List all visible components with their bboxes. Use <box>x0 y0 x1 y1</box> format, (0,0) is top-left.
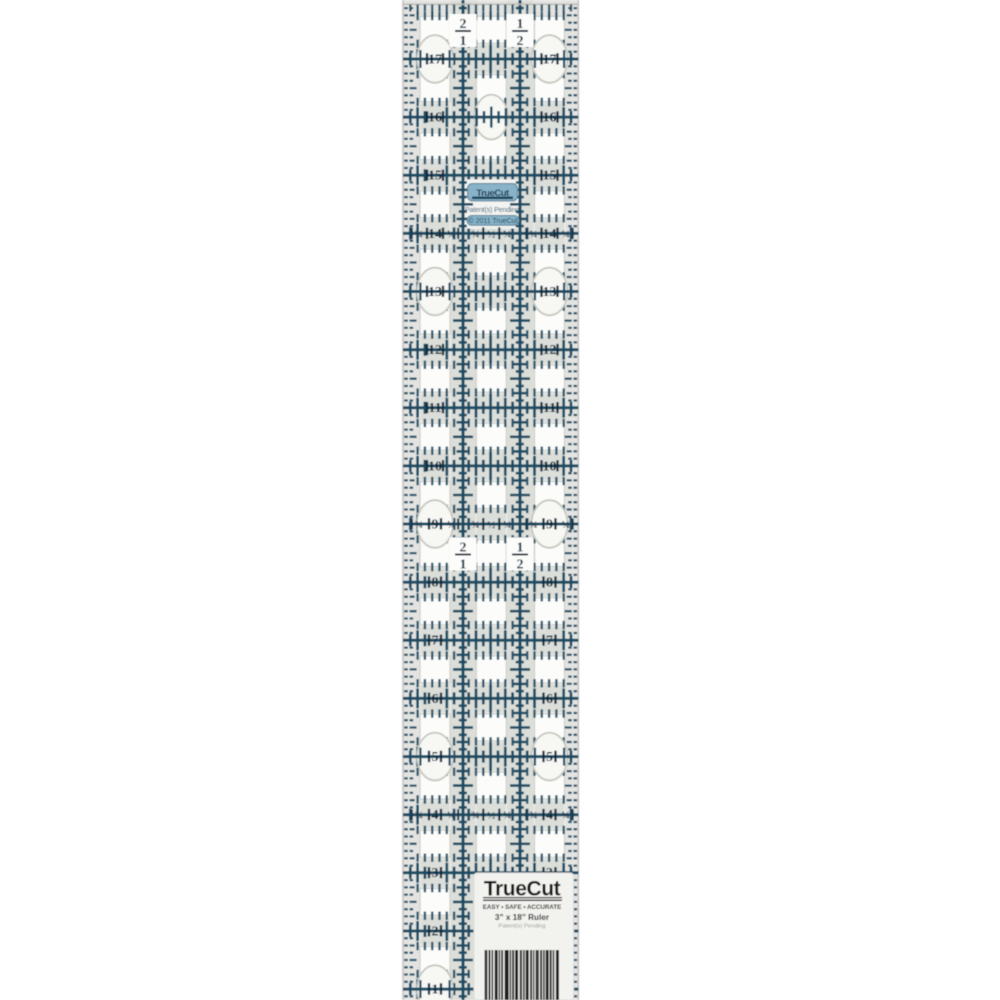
svg-text:12: 12 <box>543 343 557 358</box>
svg-text:7: 7 <box>546 634 553 649</box>
svg-text:2: 2 <box>517 558 524 573</box>
svg-text:14: 14 <box>428 227 442 242</box>
svg-text:½: ½ <box>487 810 495 822</box>
svg-text:5: 5 <box>432 750 439 765</box>
svg-text:9: 9 <box>546 517 553 532</box>
svg-text:Patent(s) Pending: Patent(s) Pending <box>465 207 520 214</box>
svg-text:6: 6 <box>546 692 553 707</box>
svg-text:5: 5 <box>546 750 553 765</box>
svg-text:14: 14 <box>543 227 557 242</box>
svg-text:12: 12 <box>428 343 442 358</box>
svg-text:8: 8 <box>432 576 439 591</box>
svg-text:4: 4 <box>546 808 553 823</box>
svg-text:½: ½ <box>487 228 495 240</box>
svg-text:8: 8 <box>546 576 553 591</box>
svg-text:4: 4 <box>432 808 439 823</box>
svg-text:2: 2 <box>460 541 467 556</box>
svg-text:½: ½ <box>487 519 495 531</box>
svg-text:1: 1 <box>517 541 524 556</box>
svg-text:¾: ¾ <box>529 228 537 240</box>
svg-text:3” x 18” Ruler: 3” x 18” Ruler <box>495 913 550 922</box>
svg-text:2: 2 <box>460 17 467 32</box>
svg-text:1: 1 <box>460 558 467 573</box>
svg-text:¼: ¼ <box>447 228 455 240</box>
svg-text:¾: ¾ <box>471 228 479 240</box>
svg-text:1: 1 <box>517 17 524 32</box>
svg-text:11: 11 <box>543 401 556 416</box>
svg-text:1: 1 <box>460 34 467 49</box>
svg-text:¾: ¾ <box>415 810 423 822</box>
svg-text:¼: ¼ <box>503 228 511 240</box>
svg-text:7: 7 <box>432 634 439 649</box>
svg-text:¾: ¾ <box>529 519 537 531</box>
svg-text:15: 15 <box>543 169 557 184</box>
svg-text:¼: ¼ <box>503 810 511 822</box>
svg-text:17: 17 <box>543 52 557 67</box>
svg-text:1: 1 <box>432 983 439 998</box>
svg-text:9: 9 <box>432 517 439 532</box>
svg-text:11: 11 <box>428 401 441 416</box>
svg-text:10: 10 <box>543 459 557 474</box>
svg-text:¾: ¾ <box>415 519 423 531</box>
svg-text:10: 10 <box>428 459 442 474</box>
svg-text:© 2011 TrueCut: © 2011 TrueCut <box>469 217 518 225</box>
svg-text:13: 13 <box>543 285 557 300</box>
svg-text:13: 13 <box>428 285 442 300</box>
svg-text:2: 2 <box>432 924 439 939</box>
svg-text:16: 16 <box>428 111 442 126</box>
svg-text:¾: ¾ <box>471 519 479 531</box>
svg-text:15: 15 <box>428 169 442 184</box>
svg-text:¼: ¼ <box>503 519 511 531</box>
svg-text:16: 16 <box>543 111 557 126</box>
svg-text:3: 3 <box>432 866 439 881</box>
svg-text:¾: ¾ <box>415 228 423 240</box>
svg-text:¾: ¾ <box>471 810 479 822</box>
svg-text:2: 2 <box>517 34 524 49</box>
svg-text:EASY • SAFE • ACCURATE: EASY • SAFE • ACCURATE <box>483 904 561 911</box>
svg-text:¼: ¼ <box>562 228 570 240</box>
svg-text:¼: ¼ <box>562 810 570 822</box>
svg-text:Patent(s) Pending: Patent(s) Pending <box>498 924 545 930</box>
svg-text:¼: ¼ <box>447 810 455 822</box>
svg-text:6: 6 <box>432 692 439 707</box>
svg-text:¼: ¼ <box>447 519 455 531</box>
svg-text:17: 17 <box>428 52 442 67</box>
svg-text:¼: ¼ <box>562 519 570 531</box>
svg-text:¾: ¾ <box>529 810 537 822</box>
